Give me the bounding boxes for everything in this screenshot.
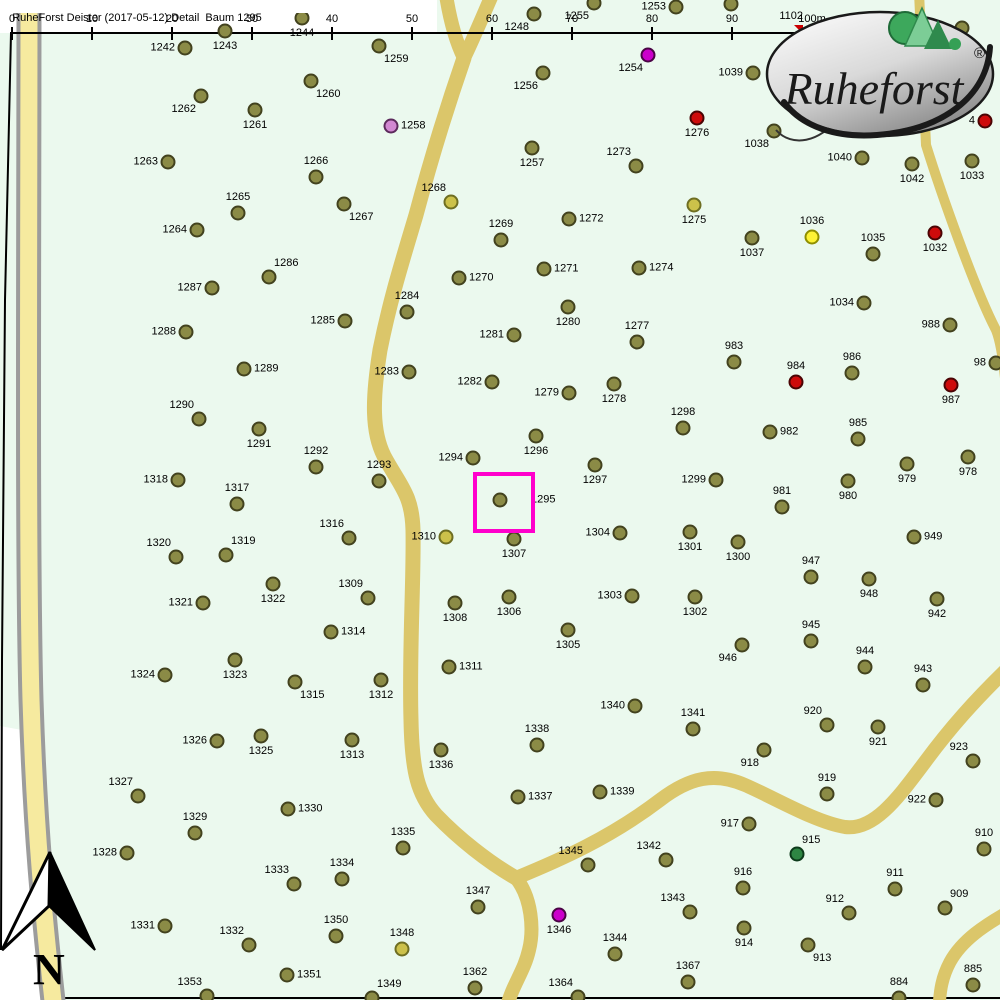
tree-marker-979[interactable] [900, 457, 915, 472]
tree-label: 981 [773, 486, 791, 497]
tree-label: 949 [924, 532, 942, 543]
tree-label: 1254 [619, 63, 643, 74]
tree-marker-988[interactable] [943, 318, 958, 333]
tree-marker-1032[interactable] [928, 226, 943, 241]
tree-label: 1341 [681, 708, 705, 719]
tree-label: 982 [780, 427, 798, 438]
tree-label: 1319 [231, 536, 255, 547]
tree-label: 1328 [93, 848, 117, 859]
tree-marker-1248[interactable] [527, 7, 542, 22]
tree-marker-1343[interactable] [683, 905, 698, 920]
tree-marker-1276[interactable] [690, 111, 705, 126]
tree-marker-1321[interactable] [196, 596, 211, 611]
tree-marker-1304[interactable] [613, 526, 628, 541]
ruheforst-logo: Ruheforst ® [762, 2, 1000, 152]
tree-marker-1335[interactable] [396, 841, 411, 856]
tree-label: 1255 [565, 11, 589, 22]
tree-marker-1037[interactable] [745, 231, 760, 246]
tree-label: 1242 [151, 43, 175, 54]
tree-label: 1316 [320, 519, 344, 530]
tree-label: 919 [818, 773, 836, 784]
tree-label: 1280 [556, 317, 580, 328]
tree-marker-1350[interactable] [329, 929, 344, 944]
tree-label: 1040 [828, 153, 852, 164]
tree-marker-1035[interactable] [866, 247, 881, 262]
tree-marker-910[interactable] [977, 842, 992, 857]
tree-label: 1288 [152, 327, 176, 338]
tree-marker-1281[interactable] [507, 328, 522, 343]
tree-label: 1364 [549, 978, 573, 989]
tree-label: 1042 [900, 174, 924, 185]
tree-label: 1348 [390, 928, 414, 939]
tree-label: 1334 [330, 858, 354, 869]
tree-label: 1330 [298, 804, 322, 815]
title-bar: RuheForst Deister (2017-05-12) Detail Ba… [0, 0, 437, 13]
tree-label: 1329 [183, 812, 207, 823]
tree-marker-1271[interactable] [537, 262, 552, 277]
tree-marker-1362[interactable] [468, 981, 483, 996]
tree-marker-914[interactable] [737, 921, 752, 936]
tree-label: 1315 [300, 690, 324, 701]
tree-label: 917 [721, 819, 739, 830]
tree-marker-1282[interactable] [485, 375, 500, 390]
tree-label: 1303 [598, 591, 622, 602]
tree-label: 1337 [528, 792, 552, 803]
tree-marker-948[interactable] [862, 572, 877, 587]
tree-marker-1278[interactable] [607, 377, 622, 392]
tree-label: 1275 [682, 215, 706, 226]
tree-marker-1318[interactable] [171, 473, 186, 488]
tree-marker-1328[interactable] [120, 846, 135, 861]
tree-marker-1329[interactable] [188, 826, 203, 841]
tree-marker-1277[interactable] [630, 335, 645, 350]
tree-label: 1263 [134, 157, 158, 168]
tree-marker-921[interactable] [871, 720, 886, 735]
tree-label: 1281 [480, 330, 504, 341]
tree-marker-1306[interactable] [502, 590, 517, 605]
tree-marker-944[interactable] [858, 660, 873, 675]
tree-marker-918[interactable] [757, 743, 772, 758]
tree-marker-949[interactable] [907, 530, 922, 545]
tree-marker-1311[interactable] [442, 660, 457, 675]
tree-label: 986 [843, 352, 861, 363]
tree-label: 1289 [254, 364, 278, 375]
tree-label: 1314 [341, 627, 365, 638]
tree-label: 1294 [439, 453, 463, 464]
tree-marker-1319[interactable] [219, 548, 234, 563]
tree-marker-1039[interactable] [746, 66, 761, 81]
tree-label: 1286 [274, 258, 298, 269]
tree-marker-1266[interactable] [309, 170, 324, 185]
tree-marker-1310[interactable] [439, 530, 454, 545]
tree-marker-1347[interactable] [471, 900, 486, 915]
tree-label: 916 [734, 867, 752, 878]
tree-label: 1326 [183, 736, 207, 747]
tree-marker-945[interactable] [804, 634, 819, 649]
tree-label: 1327 [109, 777, 133, 788]
tree-label: 1309 [339, 579, 363, 590]
tree-label: 944 [856, 646, 874, 657]
tree-label: 1301 [678, 542, 702, 553]
tree-marker-1288[interactable] [179, 325, 194, 340]
tree-label: 1284 [395, 291, 419, 302]
tree-marker-1308[interactable] [448, 596, 463, 611]
tree-label: 884 [890, 977, 908, 988]
tree-label: 1261 [243, 120, 267, 131]
tree-marker-985[interactable] [851, 432, 866, 447]
tree-label: 1339 [610, 787, 634, 798]
tree-marker-1257[interactable] [525, 141, 540, 156]
tree-marker-1349[interactable] [365, 991, 380, 1000]
tree-label: 914 [735, 938, 753, 949]
tree-label: 1276 [685, 128, 709, 139]
tree-label: 978 [959, 467, 977, 478]
tree-label: 947 [802, 556, 820, 567]
tree-label: 1321 [169, 598, 193, 609]
tree-marker-987[interactable] [944, 378, 959, 393]
tree-marker-1262[interactable] [194, 89, 209, 104]
tree-marker-1326[interactable] [210, 734, 225, 749]
tree-label: 1032 [923, 243, 947, 254]
tree-label: 1290 [170, 400, 194, 411]
tree-marker-1309[interactable] [361, 591, 376, 606]
tree-marker-1332[interactable] [242, 938, 257, 953]
tree-marker-1255[interactable] [587, 0, 602, 11]
tree-marker-915[interactable] [790, 847, 805, 862]
logo-brand-text: Ruheforst [784, 63, 965, 114]
tree-label: 1350 [324, 915, 348, 926]
tree-label: 1332 [220, 926, 244, 937]
tree-label: 1307 [502, 549, 526, 560]
tree-label: 1039 [719, 68, 743, 79]
tree-marker-1287[interactable] [205, 281, 220, 296]
tree-label: 1325 [249, 746, 273, 757]
tree-marker-1345[interactable] [581, 858, 596, 873]
tree-marker-1272[interactable] [562, 212, 577, 227]
tree-marker-913[interactable] [801, 938, 816, 953]
tree-marker-98[interactable] [989, 356, 1000, 371]
tree-label: 1274 [649, 263, 673, 274]
tree-label: 980 [839, 491, 857, 502]
tree-marker-1330[interactable] [281, 802, 296, 817]
tree-label: 885 [964, 964, 982, 975]
tree-marker-1313[interactable] [345, 733, 360, 748]
tree-label: 1353 [178, 977, 202, 988]
tree-label: 1349 [377, 979, 401, 990]
tree-marker-1274[interactable] [632, 261, 647, 276]
tree-label: 1292 [304, 446, 328, 457]
tree-marker-980[interactable] [841, 474, 856, 489]
tree-label: 1270 [469, 273, 493, 284]
tree-marker-1254[interactable] [641, 48, 656, 63]
tree-label: 1342 [637, 841, 661, 852]
tree-marker-922[interactable] [929, 793, 944, 808]
tree-marker-947[interactable] [804, 570, 819, 585]
tree-label: 1033 [960, 171, 984, 182]
tree-marker-1289[interactable] [237, 362, 252, 377]
tree-label: 1362 [463, 967, 487, 978]
tree-label: 1272 [579, 214, 603, 225]
tree-label: 1283 [375, 367, 399, 378]
tree-marker-1315[interactable] [288, 675, 303, 690]
tree-label: 1258 [401, 121, 425, 132]
tree-marker-1260[interactable] [304, 74, 319, 89]
tree-marker-884[interactable] [892, 991, 907, 1000]
tree-label: 1340 [601, 701, 625, 712]
tree-marker-1286[interactable] [262, 270, 277, 285]
tree-marker-1342[interactable] [659, 853, 674, 868]
tree-label: 912 [826, 894, 844, 905]
tree-marker-1299[interactable] [709, 473, 724, 488]
tree-marker-919[interactable] [820, 787, 835, 802]
tree-label: 1305 [556, 640, 580, 651]
tree-label: 1322 [261, 594, 285, 605]
tree-label: 1313 [340, 750, 364, 761]
tree-label: 1243 [213, 41, 237, 52]
tree-label: 1282 [458, 377, 482, 388]
tree-marker-1290[interactable] [192, 412, 207, 427]
tree-label: 910 [975, 828, 993, 839]
tree-label: 1271 [554, 264, 578, 275]
tree-label: 1331 [131, 921, 155, 932]
tree-label: 1335 [391, 827, 415, 838]
tree-marker-984[interactable] [789, 375, 804, 390]
tree-label: 1308 [443, 613, 467, 624]
tree-label: 98 [974, 358, 986, 369]
tree-marker-1273[interactable] [629, 159, 644, 174]
tree-marker-1253[interactable] [669, 0, 684, 15]
tree-label: 1035 [861, 233, 885, 244]
tree-marker-1291[interactable] [252, 422, 267, 437]
tree-marker-1243[interactable] [218, 24, 233, 39]
tree-label: 1256 [514, 81, 538, 92]
tree-marker-1353[interactable] [200, 989, 215, 1000]
tree-marker-1348[interactable] [395, 942, 410, 957]
tree-marker-1275[interactable] [687, 198, 702, 213]
tree-label: 1320 [147, 538, 171, 549]
tree-marker-1320[interactable] [169, 550, 184, 565]
tree-marker-1339[interactable] [593, 785, 608, 800]
tree-marker-982[interactable] [763, 425, 778, 440]
tree-label: 983 [725, 341, 743, 352]
tree-marker-1259[interactable] [372, 39, 387, 54]
tree-label: 1302 [683, 607, 707, 618]
tree-marker-1258[interactable] [384, 119, 399, 134]
tree-marker-1336[interactable] [434, 743, 449, 758]
tree-marker-911[interactable] [888, 882, 903, 897]
tree-label: 1346 [547, 925, 571, 936]
tree-label: 1300 [726, 552, 750, 563]
tree-label: 1304 [586, 528, 610, 539]
tree-label: 945 [802, 620, 820, 631]
tree-marker-1292[interactable] [309, 460, 324, 475]
tree-label: 1345 [559, 846, 583, 857]
tree-marker-1344[interactable] [608, 947, 623, 962]
tree-marker-1307[interactable] [507, 532, 522, 547]
tree-marker-1327[interactable] [131, 789, 146, 804]
tree-label: 1260 [316, 89, 340, 100]
tree-marker-1340[interactable] [628, 699, 643, 714]
tree-marker-1367[interactable] [681, 975, 696, 990]
tree-marker-1324[interactable] [158, 668, 173, 683]
tree-marker-1305[interactable] [561, 623, 576, 638]
tree-label: 1267 [349, 212, 373, 223]
tree-marker-1301[interactable] [683, 525, 698, 540]
tree-marker-1267[interactable] [337, 197, 352, 212]
tree-label: 948 [860, 589, 878, 600]
tree-label: 1034 [830, 298, 854, 309]
tree-marker-909[interactable] [938, 901, 953, 916]
tree-label: 1268 [422, 183, 446, 194]
tree-marker-1300[interactable] [731, 535, 746, 550]
tree-marker-885[interactable] [966, 978, 981, 993]
tree-label: 1279 [535, 388, 559, 399]
tree-marker-1312[interactable] [374, 673, 389, 688]
tree-marker-1040[interactable] [855, 151, 870, 166]
tree-marker-942[interactable] [930, 592, 945, 607]
tree-label: 984 [787, 361, 805, 372]
tree-marker-983[interactable] [727, 355, 742, 370]
tree-marker-1265[interactable] [231, 206, 246, 221]
tree-marker-917[interactable] [742, 817, 757, 832]
tree-marker-1269[interactable] [494, 233, 509, 248]
tree-label: 1262 [172, 104, 196, 115]
tree-marker-1280[interactable] [561, 300, 576, 315]
tree-marker-981[interactable] [775, 500, 790, 515]
tree-label: 1297 [583, 475, 607, 486]
tree-marker-1294[interactable] [466, 451, 481, 466]
tree-label: 1338 [525, 724, 549, 735]
tree-marker-1285[interactable] [338, 314, 353, 329]
tree-marker-1303[interactable] [625, 589, 640, 604]
tree-marker-912[interactable] [842, 906, 857, 921]
tree-label: 946 [719, 653, 737, 664]
tree-label: 1347 [466, 886, 490, 897]
tree-marker-1338[interactable] [530, 738, 545, 753]
tree-marker-1036[interactable] [805, 230, 820, 245]
tree-marker-1322[interactable] [266, 577, 281, 592]
tree-marker-1283[interactable] [402, 365, 417, 380]
tree-marker-978[interactable] [961, 450, 976, 465]
tree-marker-1333[interactable] [287, 877, 302, 892]
tree-label: 1324 [131, 670, 155, 681]
tree-label: 1311 [459, 662, 483, 673]
tree-marker-1261[interactable] [248, 103, 263, 118]
tree-marker-1268[interactable] [444, 195, 459, 210]
tree-marker-1298[interactable] [676, 421, 691, 436]
tree-label: 1317 [225, 483, 249, 494]
tree-marker-1317[interactable] [230, 497, 245, 512]
tree-label: 1367 [676, 961, 700, 972]
tree-marker-1042[interactable] [905, 157, 920, 172]
tree-marker-1351[interactable] [280, 968, 295, 983]
tree-label: 1306 [497, 607, 521, 618]
tree-label: 1298 [671, 407, 695, 418]
tree-marker-1364[interactable] [571, 990, 586, 1000]
tree-label: 1310 [412, 532, 436, 543]
tree-marker-1270[interactable] [452, 271, 467, 286]
tree-label: 915 [802, 835, 820, 846]
tree-marker-916[interactable] [736, 881, 751, 896]
tree-label: 1336 [429, 760, 453, 771]
tree-marker-1263[interactable] [161, 155, 176, 170]
tree-label: 1248 [505, 22, 529, 33]
tree-marker-1316[interactable] [342, 531, 357, 546]
tree-label: 1333 [265, 865, 289, 876]
tree-marker-1284[interactable] [400, 305, 415, 320]
tree-label: 942 [928, 609, 946, 620]
tree-marker-986[interactable] [845, 366, 860, 381]
selected-tree-highlight[interactable] [473, 472, 535, 533]
tree-label: 1318 [144, 475, 168, 486]
tree-marker-1297[interactable] [588, 458, 603, 473]
tree-label: 1285 [311, 316, 335, 327]
tree-label: 985 [849, 418, 867, 429]
tree-marker-923[interactable] [966, 754, 981, 769]
tree-label: 920 [804, 706, 822, 717]
tree-marker-1264[interactable] [190, 223, 205, 238]
tree-label: 1323 [223, 670, 247, 681]
tree-marker-1242[interactable] [178, 41, 193, 56]
tree-marker-1337[interactable] [511, 790, 526, 805]
tree-marker-946[interactable] [735, 638, 750, 653]
tree-label: 1264 [163, 225, 187, 236]
tree-label: 1265 [226, 192, 250, 203]
tree-label: 1296 [524, 446, 548, 457]
tree-label: 1351 [297, 970, 321, 981]
tree-marker-943[interactable] [916, 678, 931, 693]
tree-label: 1266 [304, 156, 328, 167]
map-view: 1102 0102030405060708090100m 12421243124… [0, 0, 1000, 1000]
tree-marker-1296[interactable] [529, 429, 544, 444]
tree-marker-1033[interactable] [965, 154, 980, 169]
tree-label: 979 [898, 474, 916, 485]
tree-label: 1273 [607, 147, 631, 158]
tree-label: 909 [950, 889, 968, 900]
tree-label: 1253 [642, 2, 666, 13]
tree-marker-1346[interactable] [552, 908, 567, 923]
tree-marker-1325[interactable] [254, 729, 269, 744]
tree-label: 1257 [520, 158, 544, 169]
tree-label: 1036 [800, 216, 824, 227]
tree-label: 1287 [178, 283, 202, 294]
tree-label: 923 [950, 742, 968, 753]
tree-marker-1323[interactable] [228, 653, 243, 668]
tree-marker-1341[interactable] [686, 722, 701, 737]
tree-label: 921 [869, 737, 887, 748]
tree-label: 1343 [661, 893, 685, 904]
tree-marker[interactable] [724, 0, 739, 12]
tree-label: 1277 [625, 321, 649, 332]
tree-label: 1291 [247, 439, 271, 450]
tree-marker-1334[interactable] [335, 872, 350, 887]
tree-marker-1034[interactable] [857, 296, 872, 311]
tree-label: 922 [908, 795, 926, 806]
tree-marker-920[interactable] [820, 718, 835, 733]
tree-marker-1279[interactable] [562, 386, 577, 401]
tree-label: 1293 [367, 460, 391, 471]
tree-marker-1331[interactable] [158, 919, 173, 934]
tree-marker-1314[interactable] [324, 625, 339, 640]
tree-label: 1244 [290, 28, 314, 39]
page-title: RuheForst Deister (2017-05-12) Detail Ba… [12, 12, 261, 24]
tree-marker-1293[interactable] [372, 474, 387, 489]
tree-marker-1256[interactable] [536, 66, 551, 81]
tree-label: 1312 [369, 690, 393, 701]
tree-label: 1299 [682, 475, 706, 486]
tree-marker-1302[interactable] [688, 590, 703, 605]
tree-label: 1278 [602, 394, 626, 405]
